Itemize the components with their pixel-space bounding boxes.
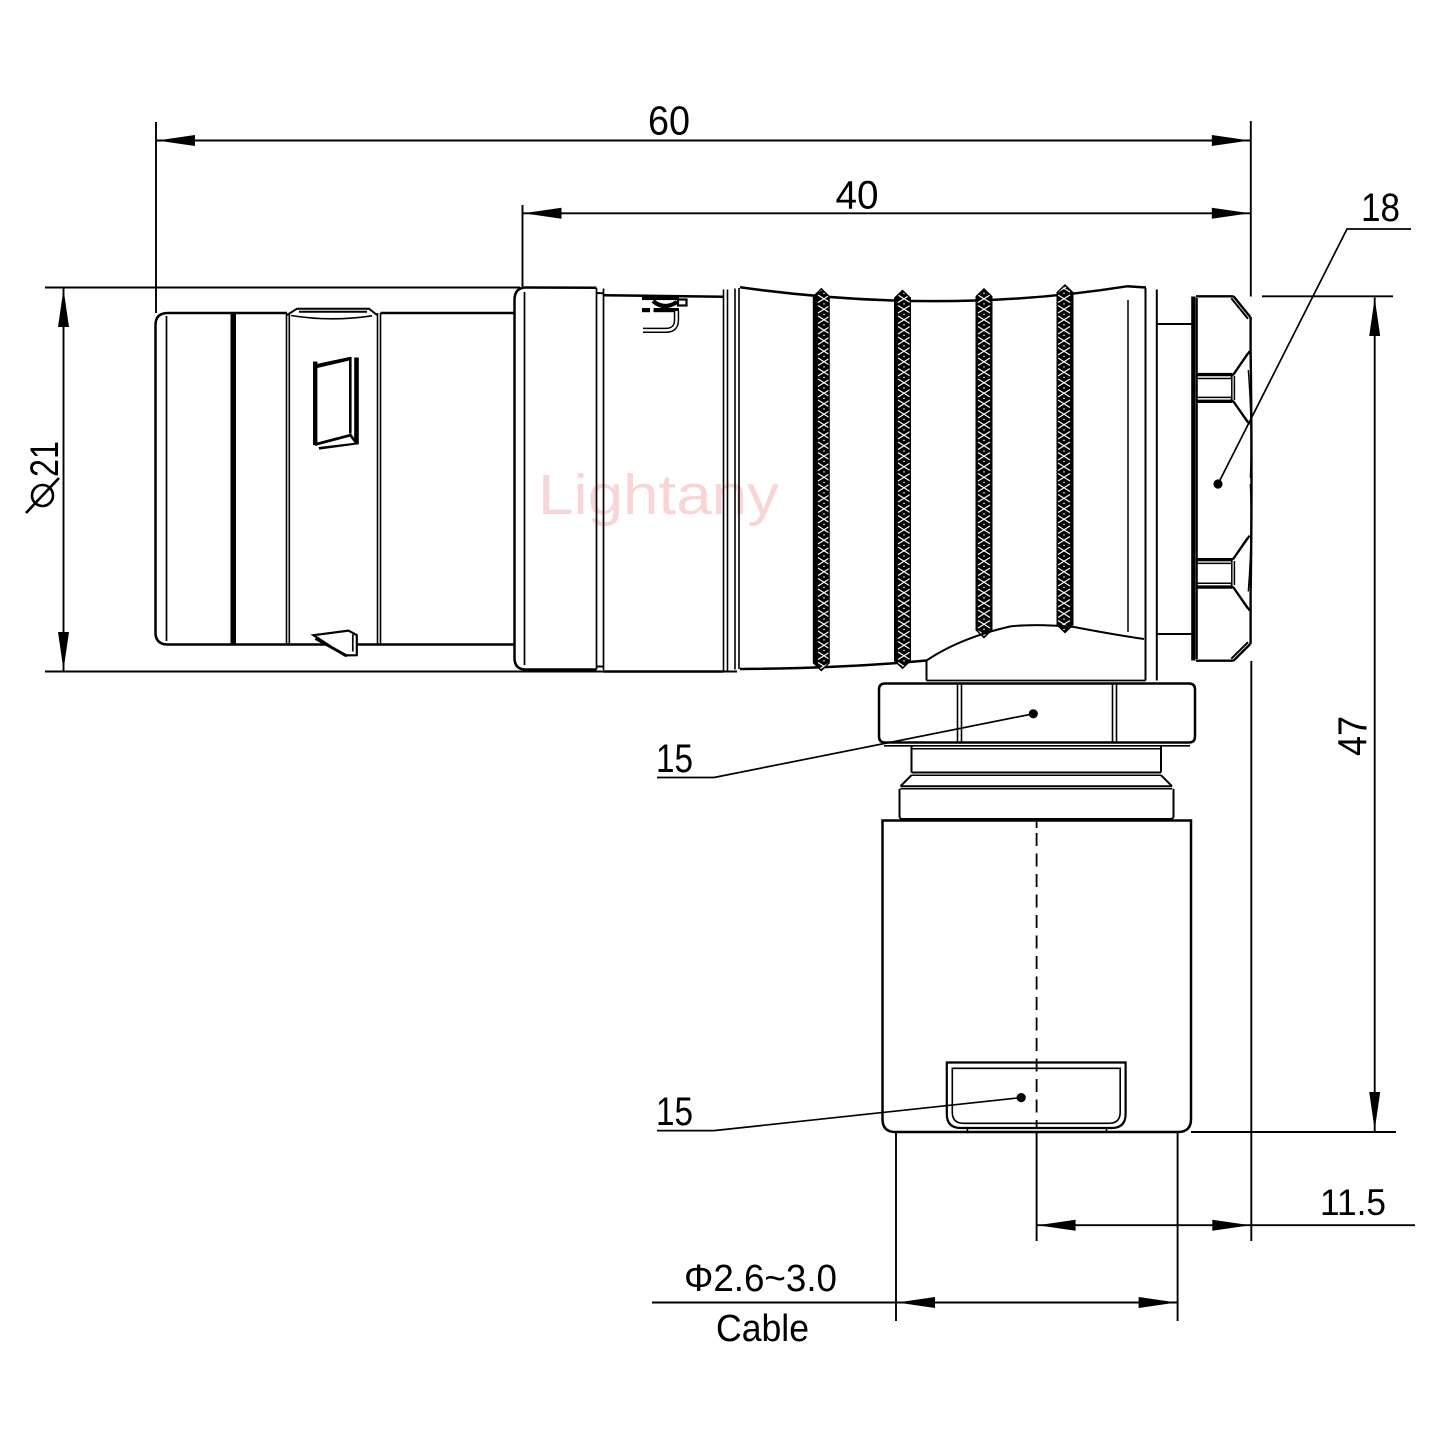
svg-text:Lightany: Lightany xyxy=(538,463,780,527)
svg-text:11.5: 11.5 xyxy=(1320,1182,1386,1223)
svg-text:21: 21 xyxy=(23,441,67,477)
svg-text:47: 47 xyxy=(1330,716,1376,756)
svg-text:18: 18 xyxy=(1361,186,1400,230)
svg-text:40: 40 xyxy=(836,174,879,218)
svg-text:15: 15 xyxy=(656,1090,693,1134)
svg-text:Φ2.6~3.0: Φ2.6~3.0 xyxy=(684,1258,837,1300)
svg-text:15: 15 xyxy=(656,737,693,781)
svg-text:Cable: Cable xyxy=(716,1308,809,1350)
svg-text:60: 60 xyxy=(648,98,690,144)
